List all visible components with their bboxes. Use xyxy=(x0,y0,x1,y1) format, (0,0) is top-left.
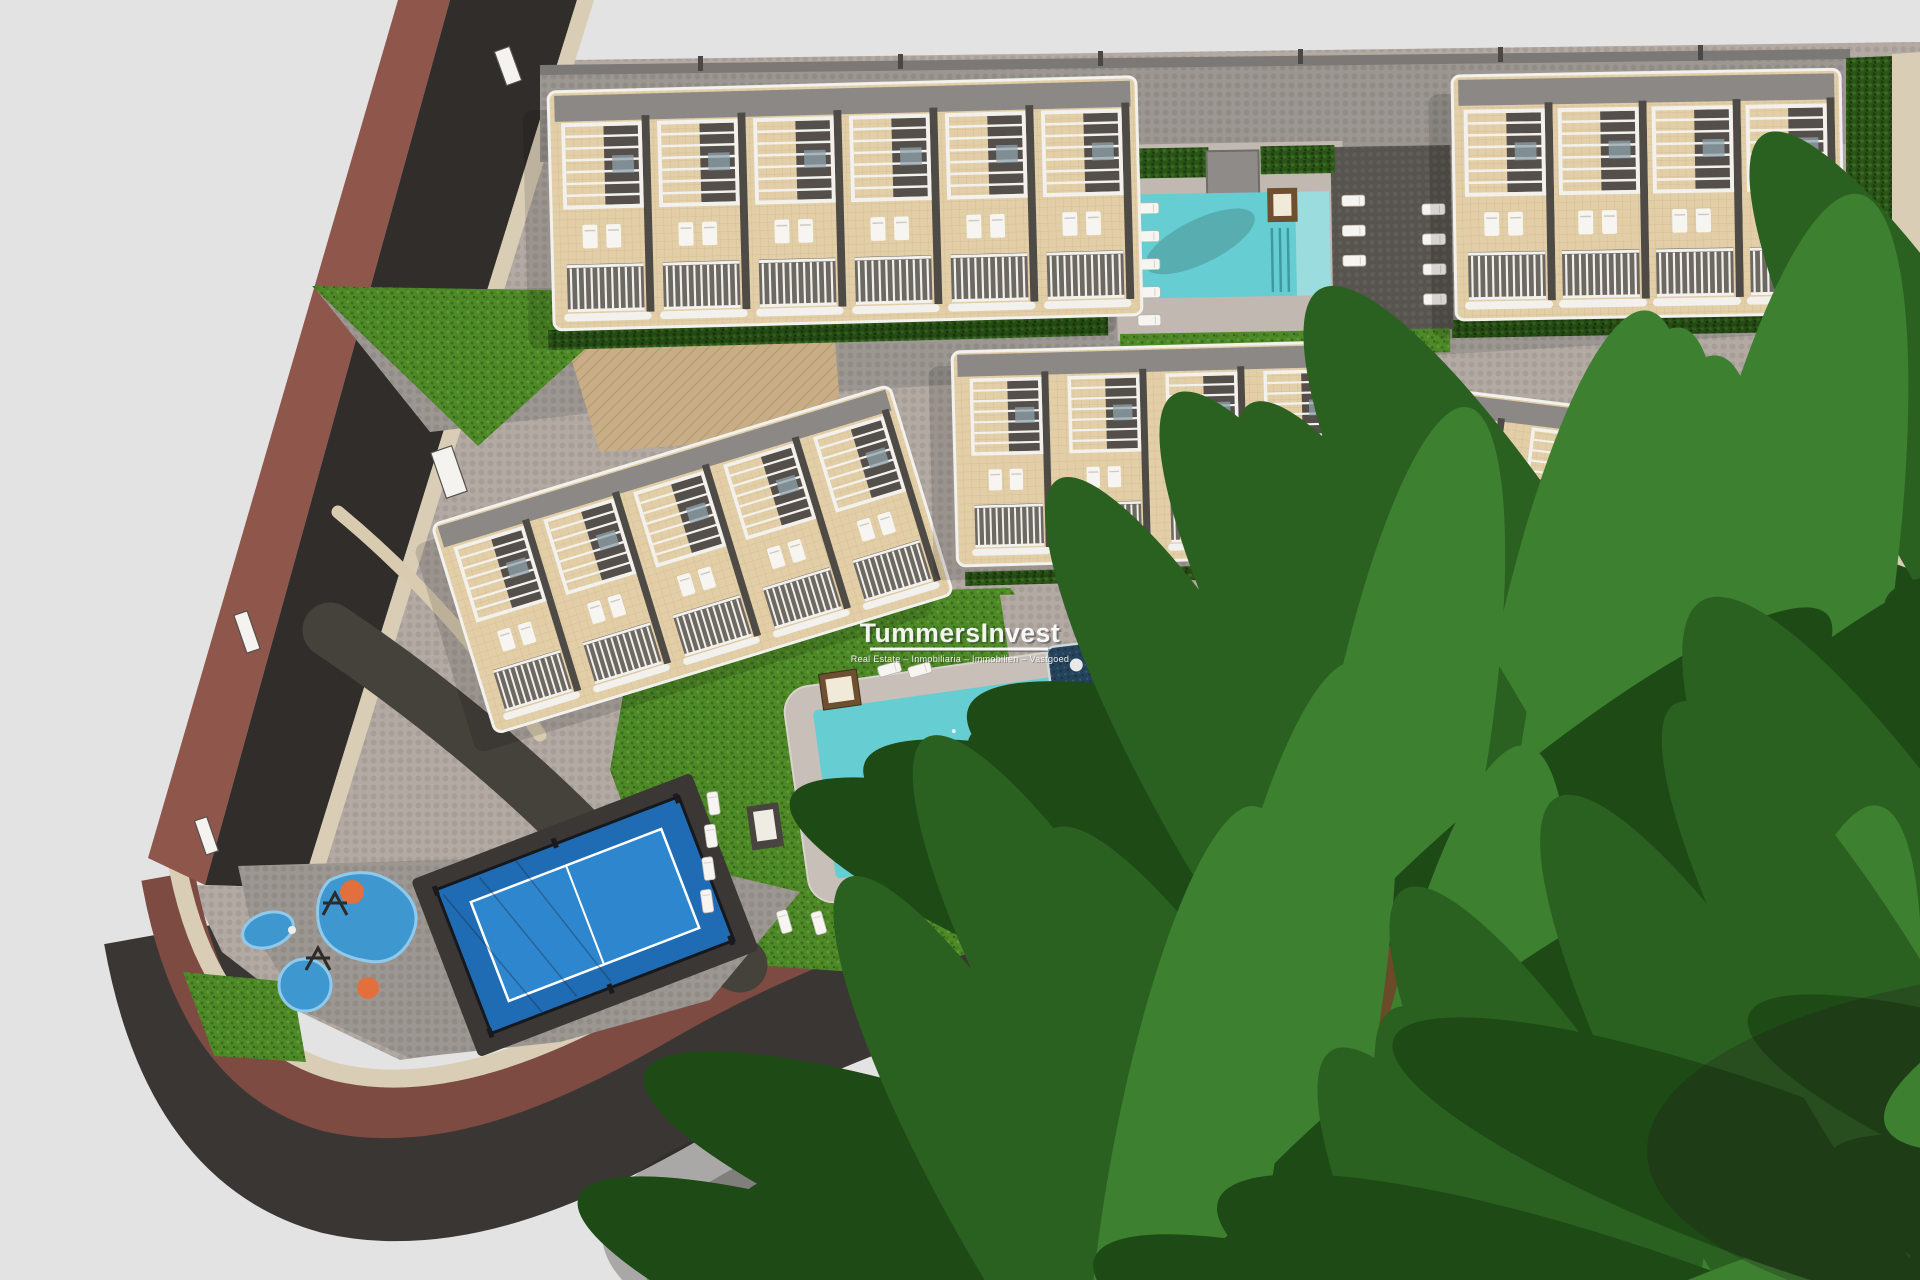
splash-pad-round xyxy=(279,959,331,1011)
top-pool-shallow xyxy=(1295,191,1331,296)
aerial-render: TummersInvest TummersInvest Real Estate … xyxy=(0,0,1920,1280)
play-circle-orange-2 xyxy=(357,977,379,999)
site-plan-render: TummersInvest TummersInvest Real Estate … xyxy=(0,0,1920,1280)
cabana-top xyxy=(825,676,854,703)
spring-rider xyxy=(288,926,296,934)
sun-lounger xyxy=(1342,195,1365,206)
play-circle-orange xyxy=(340,880,364,904)
top-pool-area xyxy=(1114,139,1453,341)
sun-lounger xyxy=(1342,225,1365,236)
building-top-left xyxy=(522,77,1142,349)
pool-pavilion xyxy=(1206,150,1259,199)
watermark-tagline: Real Estate – Inmobiliaria – Immobilien … xyxy=(851,654,1069,664)
cabana-dark-top xyxy=(753,809,777,841)
pool-cabana-top xyxy=(1273,194,1291,216)
watermark: TummersInvest TummersInvest Real Estate … xyxy=(851,618,1070,665)
watermark-brand: TummersInvest xyxy=(860,618,1060,648)
sun-lounger xyxy=(1343,255,1366,266)
watermark-underline xyxy=(870,648,1048,651)
top-pool-hedge-right xyxy=(1260,145,1334,174)
sun-lounger xyxy=(1138,315,1161,326)
